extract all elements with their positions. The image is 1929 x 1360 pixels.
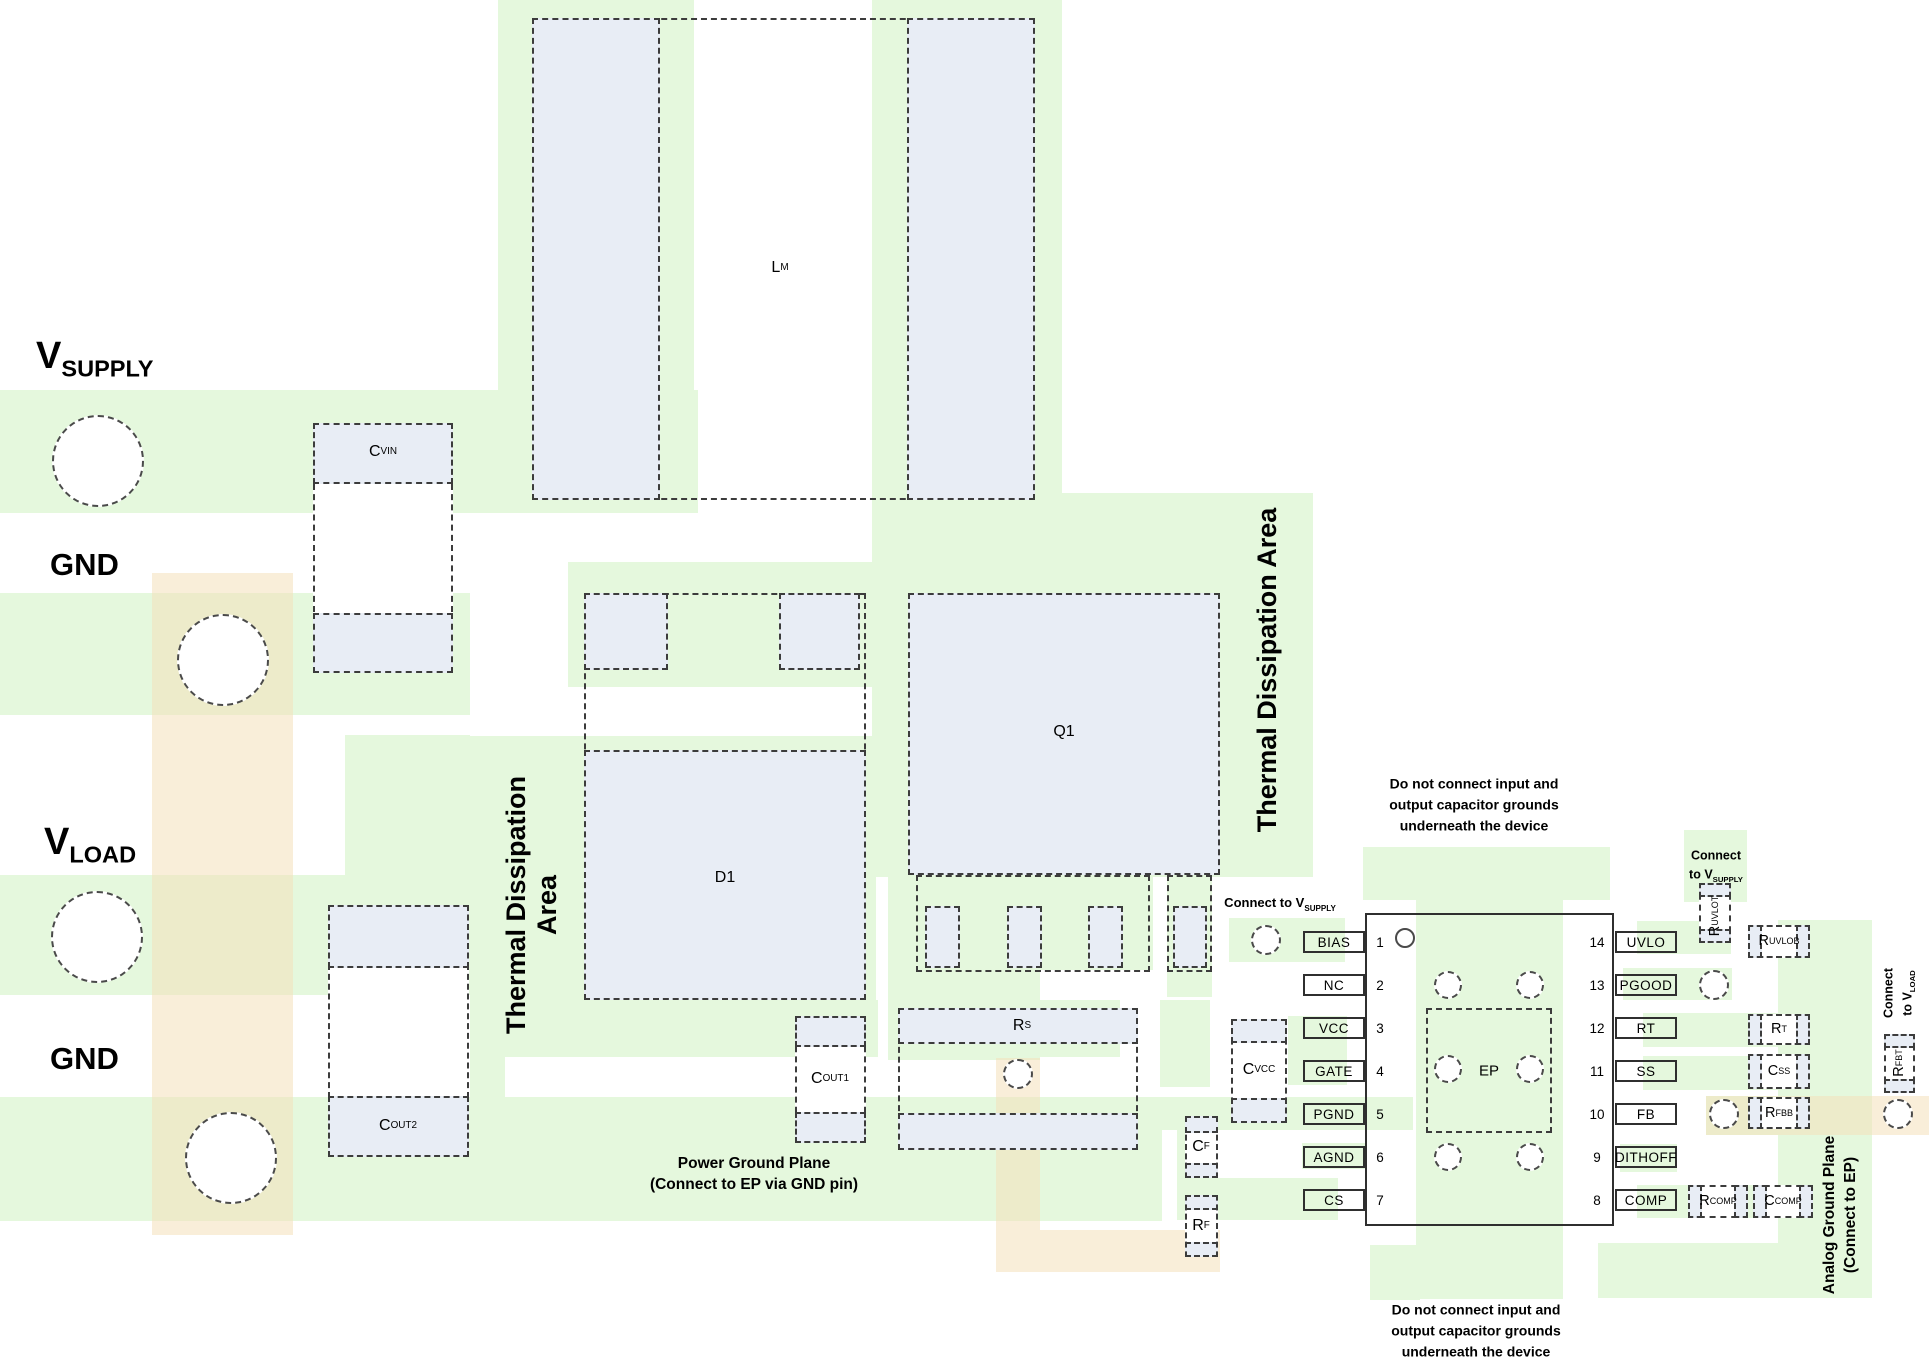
- pgood-via: [1699, 970, 1729, 1000]
- inductor-lm-pad-1: [532, 18, 660, 500]
- resistor-rfbb-label: RFBB: [1765, 1105, 1793, 1121]
- cap-cout1-label: COUT1: [811, 1070, 849, 1088]
- pin-cs: CS: [1303, 1189, 1365, 1211]
- resistor-rt-label: RT: [1771, 1021, 1787, 1037]
- cap-cf-pad-1: [1185, 1116, 1218, 1133]
- gnd-via-top: [177, 614, 269, 706]
- diode-d1-label: D1: [715, 869, 735, 887]
- cap-cvin-pad-2: [313, 613, 453, 673]
- cs-via: [1003, 1059, 1033, 1089]
- diode-d1: [584, 593, 866, 1000]
- vsupply-via: [52, 415, 144, 507]
- resistor-rs-label: RS: [1013, 1017, 1031, 1035]
- resistor-rt-pad-1: [1748, 1014, 1762, 1045]
- cap-cout2-label: COUT2: [379, 1117, 417, 1135]
- cap-cf-pad-2: [1185, 1163, 1218, 1178]
- cap-css-pad-1: [1748, 1054, 1762, 1089]
- pin-dithoff: DITHOFF: [1615, 1146, 1677, 1168]
- inductor-lm-label: LM: [771, 259, 788, 277]
- resistor-ruvlot-label: RUVLOT: [1707, 896, 1723, 936]
- cap-cf-label: CF: [1192, 1138, 1210, 1156]
- cap-cvcc-pad-2: [1231, 1098, 1287, 1123]
- resistor-ruvlob-label: RUVLOB: [1759, 933, 1800, 949]
- do-not-connect-top: Do not connect input andoutput capacitor…: [1389, 774, 1559, 837]
- cap-cout1-pad-1: [795, 1016, 866, 1047]
- pin-vcc: VCC: [1303, 1017, 1365, 1039]
- exposed-pad-label: EP: [1479, 1063, 1499, 1080]
- pin-number-11: 11: [1583, 1060, 1611, 1082]
- resistor-rf-pad-1: [1185, 1195, 1218, 1210]
- diode-d1-pad-2: [779, 593, 860, 670]
- bias-via: [1251, 925, 1281, 955]
- copper-plane-below-ic-left: [1370, 1245, 1420, 1300]
- thermal-area-left: Thermal DissipationArea: [501, 776, 563, 1034]
- pin-number-3: 3: [1368, 1017, 1392, 1039]
- resistor-rfbb-pad-2: [1796, 1097, 1810, 1129]
- pin-number-10: 10: [1583, 1103, 1611, 1125]
- pin-ss: SS: [1615, 1060, 1677, 1082]
- do-not-connect-bottom: Do not connect input andoutput capacitor…: [1391, 1300, 1561, 1360]
- fb-via: [1709, 1099, 1739, 1129]
- q1-pin-pads-pad-3: [1088, 906, 1123, 968]
- resistor-rfbt-pad-2: [1884, 1079, 1915, 1093]
- connect-vload: Connectto VLOAD: [1880, 968, 1919, 1018]
- pin-uvlo: UVLO: [1615, 931, 1677, 953]
- vload-fb-via: [1883, 1099, 1913, 1129]
- cap-cvcc-label: CVCC: [1243, 1061, 1275, 1079]
- cap-cout1-pad-2: [795, 1112, 866, 1143]
- cap-ccomp-label: CCOMP: [1764, 1193, 1801, 1209]
- resistor-rf-pad-2: [1185, 1242, 1218, 1257]
- vload-label: VLOAD: [44, 820, 136, 867]
- copper-plane-ic-top-block: [1363, 847, 1610, 900]
- pin-comp: COMP: [1615, 1189, 1677, 1211]
- q1-pin-pad4-pad-1: [1173, 906, 1207, 968]
- connect-vsupply-uvlo: Connectto VSUPPLY: [1689, 847, 1743, 886]
- pin-number-8: 8: [1583, 1189, 1611, 1211]
- analog-ground-plane: Analog Ground Plane(Connect to EP): [1820, 1136, 1862, 1294]
- pin-nc: NC: [1303, 974, 1365, 996]
- resistor-rt-pad-2: [1796, 1014, 1810, 1045]
- pin1-indicator: [1395, 928, 1415, 948]
- pin-number-4: 4: [1368, 1060, 1392, 1082]
- vload-via: [51, 891, 143, 983]
- pin-number-13: 13: [1583, 974, 1611, 996]
- pin-rt: RT: [1615, 1017, 1677, 1039]
- resistor-rfbb-pad-1: [1748, 1097, 1762, 1129]
- gnd-via-bottom: [185, 1112, 277, 1204]
- connect-vsupply-bias: Connect to VSUPPLY: [1224, 895, 1336, 913]
- pin-agnd: AGND: [1303, 1146, 1365, 1168]
- cap-cout2-pad-1: [328, 905, 469, 968]
- copper-plane-analog-bottom-block: [1598, 1243, 1778, 1298]
- resistor-rcomp-label: RCOMP: [1699, 1193, 1736, 1209]
- gnd-label-top: GND: [50, 546, 119, 583]
- q1-pin-pad4: [1167, 875, 1212, 972]
- q1-pin-pads-pad-1: [925, 906, 960, 968]
- cap-css-label: CSS: [1768, 1063, 1790, 1079]
- pin-bias: BIAS: [1303, 931, 1365, 953]
- vsupply-label: VSUPPLY: [36, 334, 153, 381]
- q1-pin-pads-pad-2: [1007, 906, 1042, 968]
- resistor-rs-pad-2: [898, 1113, 1138, 1150]
- thermal-area-right: Thermal Dissipation Area: [1251, 508, 1283, 833]
- pin-pgood: PGOOD: [1615, 974, 1677, 996]
- cap-css-pad-2: [1796, 1054, 1810, 1089]
- pin-number-1: 1: [1368, 931, 1392, 953]
- pin-number-9: 9: [1583, 1146, 1611, 1168]
- pin-pgnd: PGND: [1303, 1103, 1365, 1125]
- pin-number-6: 6: [1368, 1146, 1392, 1168]
- resistor-rfbt-pad-1: [1884, 1034, 1915, 1048]
- pin-number-2: 2: [1368, 974, 1392, 996]
- q1-pin-pads: [916, 875, 1150, 972]
- pin-number-12: 12: [1583, 1017, 1611, 1039]
- gnd-label-bottom: GND: [50, 1040, 119, 1077]
- pin-number-7: 7: [1368, 1189, 1392, 1211]
- resistor-rfbt-label: RFBT: [1891, 1049, 1907, 1076]
- pin-number-14: 14: [1583, 931, 1611, 953]
- diode-d1-pad-1: [584, 593, 668, 670]
- power-ground-plane: Power Ground Plane(Connect to EP via GND…: [650, 1154, 858, 1196]
- cap-cvin-label: CVIN: [369, 443, 397, 461]
- pcb-layout-diagram: CVINLMD1Q1RSCOUT1COUT2CVCCCFRFRUVLOTRUVL…: [0, 0, 1929, 1360]
- pin-fb: FB: [1615, 1103, 1677, 1125]
- resistor-rf-label: RF: [1192, 1217, 1210, 1235]
- mosfet-q1-label: Q1: [1053, 723, 1074, 741]
- inductor-lm-pad-2: [907, 18, 1035, 500]
- copper-plane-cvcc-left-column: [1160, 1000, 1210, 1087]
- pin-gate: GATE: [1303, 1060, 1365, 1082]
- pin-number-5: 5: [1368, 1103, 1392, 1125]
- cap-cvcc-pad-1: [1231, 1019, 1287, 1043]
